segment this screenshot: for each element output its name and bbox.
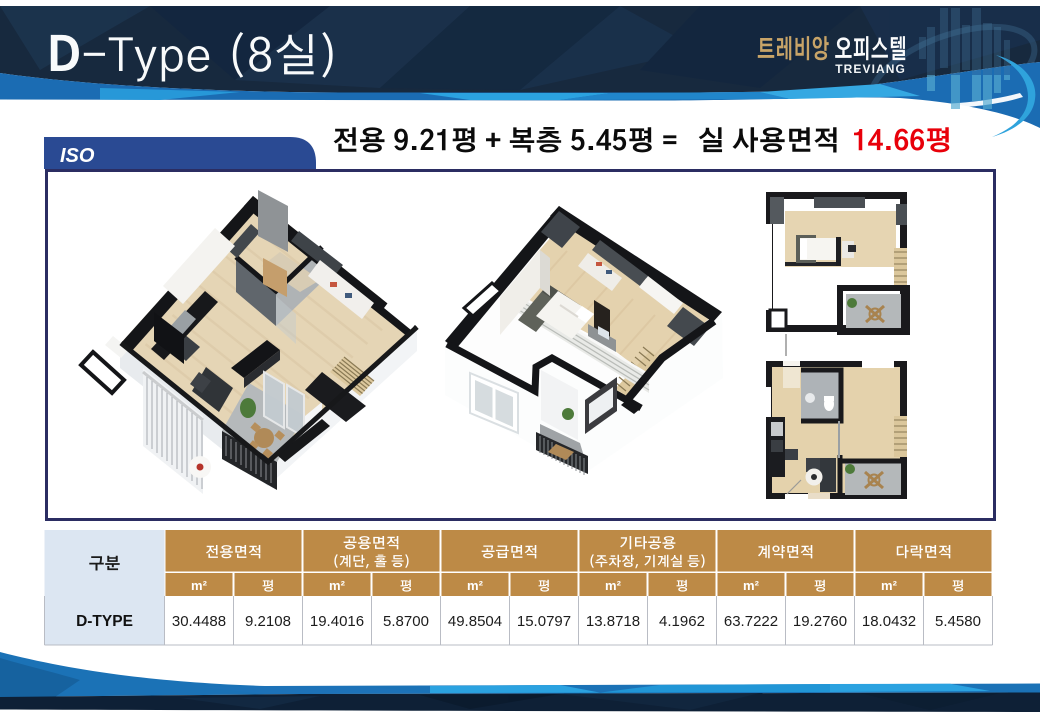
svg-text:19.4016: 19.4016 <box>310 613 364 630</box>
svg-text:m²: m² <box>467 578 484 593</box>
svg-text:m²: m² <box>191 578 208 593</box>
svg-text:D-TYPE: D-TYPE <box>76 613 133 630</box>
svg-text:m²: m² <box>743 578 760 593</box>
svg-text:19.2760: 19.2760 <box>793 613 847 630</box>
svg-text:13.8718: 13.8718 <box>586 613 640 630</box>
svg-text:15.0797: 15.0797 <box>517 613 571 630</box>
svg-text:30.4488: 30.4488 <box>172 613 226 630</box>
svg-text:63.7222: 63.7222 <box>724 613 778 630</box>
svg-text:TREVIANG: TREVIANG <box>835 62 906 76</box>
svg-text:m²: m² <box>605 578 622 593</box>
svg-text:m²: m² <box>881 578 898 593</box>
svg-text:5.4580: 5.4580 <box>935 613 981 630</box>
svg-text:49.8504: 49.8504 <box>448 613 502 630</box>
svg-text:5.8700: 5.8700 <box>383 613 429 630</box>
svg-text:18.0432: 18.0432 <box>862 613 916 630</box>
svg-text:m²: m² <box>329 578 346 593</box>
svg-text:ISO: ISO <box>60 145 95 167</box>
svg-text:4.1962: 4.1962 <box>659 613 705 630</box>
svg-text:9.2108: 9.2108 <box>245 613 291 630</box>
